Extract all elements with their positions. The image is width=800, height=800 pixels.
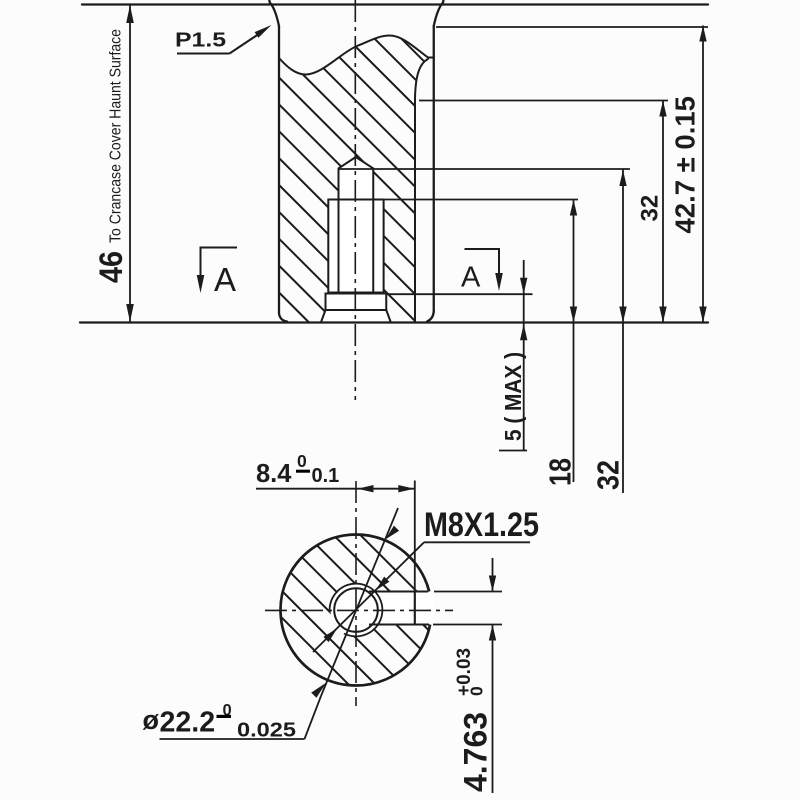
svg-text:4.763: 4.763 <box>458 712 494 792</box>
svg-text:8.4: 8.4 <box>256 460 292 488</box>
svg-text:ø: ø <box>143 705 160 735</box>
svg-text:42.7 ± 0.15: 42.7 ± 0.15 <box>670 96 701 233</box>
svg-text:0: 0 <box>467 686 487 696</box>
svg-text:0.025: 0.025 <box>237 720 296 742</box>
svg-text:46: 46 <box>93 251 129 283</box>
svg-text:A: A <box>214 261 236 298</box>
svg-text:22.2: 22.2 <box>160 707 216 739</box>
svg-text:18: 18 <box>543 458 578 486</box>
svg-text:0.1: 0.1 <box>312 465 340 487</box>
svg-text:P1.5: P1.5 <box>175 30 226 52</box>
svg-text:5 ( MAX ): 5 ( MAX ) <box>500 352 526 441</box>
svg-text:0: 0 <box>297 451 307 471</box>
svg-text:M8X1.25: M8X1.25 <box>424 506 539 544</box>
svg-text:To Crancase Cover Haunt Surfac: To Crancase Cover Haunt Surface <box>108 29 125 243</box>
svg-text:32: 32 <box>637 195 664 222</box>
svg-text:A: A <box>461 262 481 294</box>
svg-text:32: 32 <box>591 460 626 490</box>
